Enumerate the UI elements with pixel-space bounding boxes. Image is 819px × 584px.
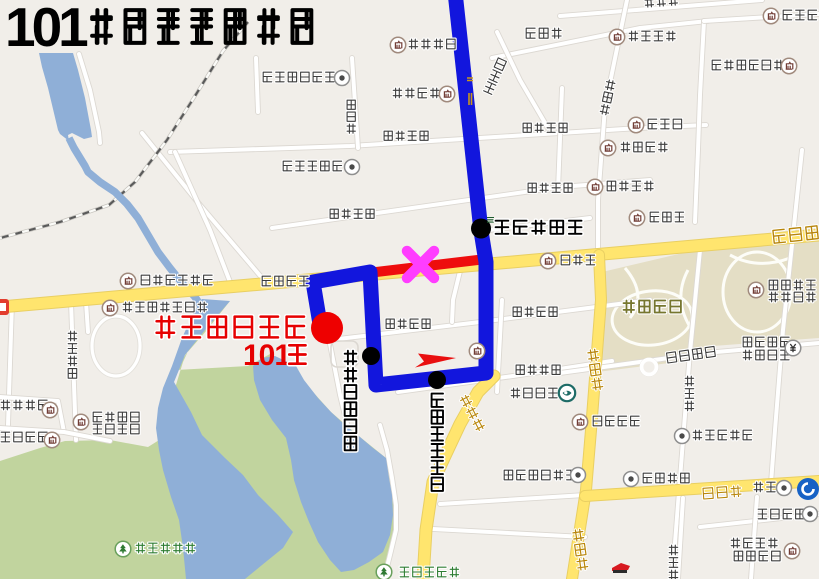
svg-text:101: 101: [5, 0, 88, 58]
svg-text:101: 101: [243, 339, 290, 372]
